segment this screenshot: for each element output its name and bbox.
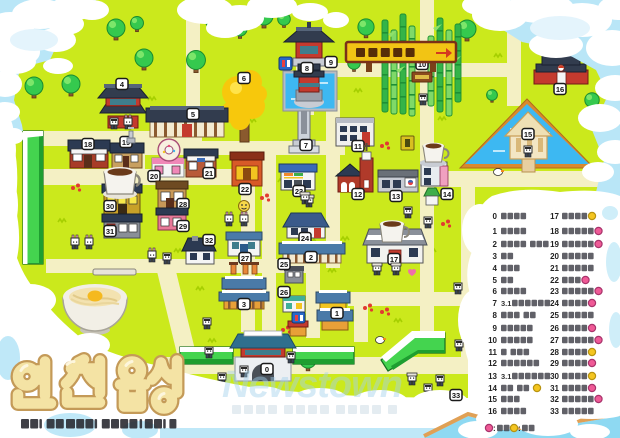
svg-text:12: 12 [488, 359, 497, 368]
svg-text:17: 17 [550, 212, 559, 221]
svg-text:22: 22 [241, 185, 249, 194]
svg-text:0: 0 [493, 212, 498, 221]
svg-text:32: 32 [550, 395, 559, 404]
svg-text:30: 30 [106, 202, 114, 211]
svg-text:22: 22 [550, 276, 559, 285]
svg-text:32: 32 [205, 236, 213, 245]
svg-text:1: 1 [493, 227, 498, 236]
svg-text:31: 31 [106, 227, 114, 236]
svg-text::: : [518, 424, 521, 433]
svg-text:16: 16 [556, 85, 564, 94]
svg-text:16: 16 [488, 407, 497, 416]
svg-text:33: 33 [550, 407, 559, 416]
svg-text:13: 13 [488, 372, 497, 381]
svg-text:29: 29 [550, 359, 559, 368]
svg-text:Newstown: Newstown [222, 364, 402, 406]
svg-text:3: 3 [493, 252, 498, 261]
svg-text:17: 17 [390, 255, 398, 264]
svg-text:18: 18 [84, 140, 92, 149]
svg-text:7: 7 [493, 299, 498, 308]
svg-text:24: 24 [550, 299, 559, 308]
svg-text:8: 8 [305, 64, 309, 73]
svg-text:21: 21 [550, 264, 559, 273]
svg-text:28: 28 [550, 348, 559, 357]
svg-text:6: 6 [493, 287, 498, 296]
svg-text:3: 3 [242, 300, 246, 309]
svg-text:12: 12 [354, 190, 362, 199]
svg-text:33: 33 [452, 391, 460, 400]
svg-text:1: 1 [335, 309, 339, 318]
svg-text:15: 15 [524, 130, 532, 139]
svg-text:7: 7 [304, 141, 308, 150]
svg-text:8: 8 [493, 311, 498, 320]
svg-text:21: 21 [205, 169, 213, 178]
svg-text:14: 14 [488, 384, 497, 393]
svg-text:20: 20 [550, 252, 559, 261]
svg-text:28: 28 [179, 200, 187, 209]
svg-text:10: 10 [488, 336, 497, 345]
svg-text:5: 5 [191, 110, 195, 119]
svg-text:18: 18 [550, 227, 559, 236]
svg-text:9: 9 [493, 324, 498, 333]
svg-text:14: 14 [443, 190, 452, 199]
svg-text:29: 29 [179, 222, 187, 231]
svg-text:27: 27 [241, 254, 249, 263]
svg-text:20: 20 [150, 172, 158, 181]
svg-text:6: 6 [242, 74, 246, 83]
svg-text:19: 19 [550, 240, 559, 249]
svg-text:25: 25 [280, 260, 288, 269]
svg-text:4: 4 [493, 264, 498, 273]
svg-text:31: 31 [550, 384, 559, 393]
svg-text:30: 30 [550, 372, 559, 381]
svg-text:27: 27 [550, 336, 559, 345]
svg-text:26: 26 [280, 288, 288, 297]
svg-text:3.1: 3.1 [501, 299, 511, 308]
svg-text:26: 26 [550, 324, 559, 333]
svg-text:2: 2 [493, 240, 498, 249]
svg-text:25: 25 [550, 311, 559, 320]
svg-text:11: 11 [354, 142, 362, 151]
svg-text:2: 2 [309, 253, 313, 262]
svg-text:3.1: 3.1 [501, 372, 511, 381]
svg-text:9: 9 [329, 58, 333, 67]
svg-text:5: 5 [493, 276, 498, 285]
svg-text:15: 15 [488, 395, 497, 404]
svg-text:13: 13 [392, 192, 400, 201]
svg-text:11: 11 [489, 348, 498, 357]
svg-text:23: 23 [550, 287, 559, 296]
svg-text::: : [493, 424, 496, 433]
